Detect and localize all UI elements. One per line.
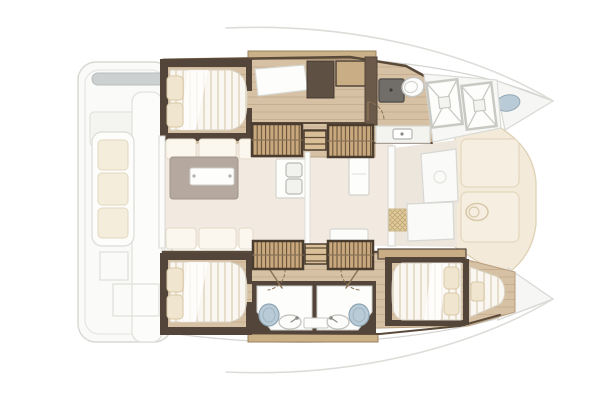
transom-crossbar <box>92 73 164 85</box>
forward-cockpit-seat <box>407 202 454 241</box>
bow-hatch-center <box>473 99 485 111</box>
forward-bed-pillow <box>444 293 459 315</box>
aft-cabin-wall <box>246 59 252 91</box>
forepeak-pillow <box>471 282 484 301</box>
starboard-sidedeck-trim <box>248 334 378 342</box>
companionway-steps <box>304 130 326 150</box>
fridge <box>349 155 369 195</box>
shower-drain <box>389 88 392 91</box>
settee-cushion <box>199 139 236 159</box>
aft-bench-cushion <box>98 173 128 205</box>
settee-cushion <box>166 228 196 249</box>
head-partition <box>365 57 377 125</box>
foredeck-panel <box>461 139 519 187</box>
floorplan-canvas <box>0 0 600 400</box>
plan-root <box>78 27 553 372</box>
settee-cushion <box>199 228 236 249</box>
saloon-aft-door <box>159 136 165 248</box>
starboard-aft-bed-pillow <box>167 268 183 292</box>
dressing-cabinet <box>307 61 334 98</box>
forward-cabin-wall <box>385 259 392 323</box>
aft-cabin-wall <box>246 253 252 284</box>
forepeak-bulkhead <box>463 259 469 325</box>
aft-bench-cushion <box>98 140 128 170</box>
table-leaf-pin <box>192 174 195 177</box>
table-leaf-pin <box>228 174 231 177</box>
aft-cabin-wall <box>160 59 168 143</box>
toilet-left <box>259 304 279 326</box>
galley-sink-basin <box>286 163 302 177</box>
bow-hatch-center <box>438 96 450 108</box>
aft-cabin-wall <box>160 253 168 335</box>
galley-sink-basin <box>286 179 302 194</box>
forward-cabin-wall <box>385 320 465 326</box>
forward-cockpit-seat <box>421 149 458 203</box>
toilet-right <box>349 304 369 326</box>
aft-cabin-wall <box>160 327 252 335</box>
dressing-seat <box>255 65 308 96</box>
port-aft-bed-pillow <box>167 103 183 127</box>
galley-partition <box>305 152 310 246</box>
catamaran-floorplan <box>0 0 600 400</box>
foredeck-panel <box>461 192 519 242</box>
vanity-faucet <box>400 132 403 135</box>
port-aft-bed-pillow <box>167 76 183 100</box>
aft-cabin-wall <box>160 59 252 67</box>
bathroom-shelf <box>304 318 328 328</box>
saloon-table-leaf <box>190 168 234 185</box>
starboard-aft-bed-pillow <box>167 295 183 319</box>
aft-cabin-wall <box>160 253 252 260</box>
forward-bed-pillow <box>444 267 459 289</box>
cockpit-bench-back <box>132 92 162 342</box>
settee-cushion <box>239 228 253 249</box>
companionway-steps <box>305 244 327 264</box>
aft-bench-cushion <box>98 208 128 238</box>
forward-cabin-wall <box>385 257 465 263</box>
aft-cabin-wall <box>246 302 252 335</box>
settee-cushion <box>166 139 196 159</box>
